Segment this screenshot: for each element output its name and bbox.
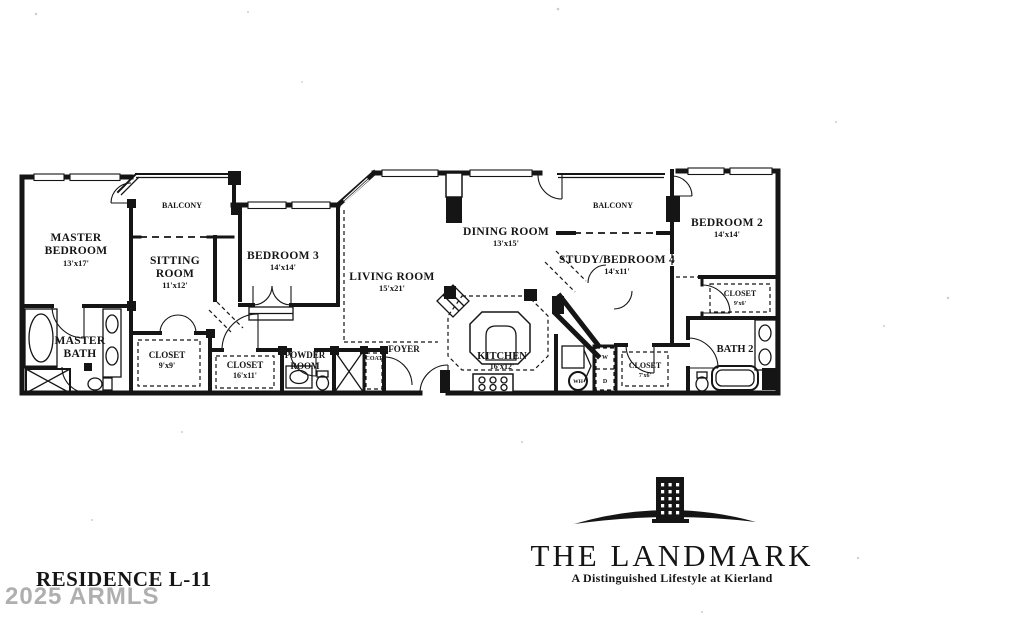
dims-kitchen: 16'x12'	[490, 362, 514, 371]
label-master-bath: MASTER	[54, 335, 105, 347]
dims-closet-bedroom-2: 9'x6'	[734, 301, 747, 307]
brand-tagline: A Distinguished Lifestyle at Kierland	[571, 571, 772, 585]
label-foyer: FOYER	[388, 344, 420, 354]
label-washer: W	[602, 355, 608, 361]
label-bath-2: BATH 2	[717, 344, 754, 355]
label-kitchen: KITCHEN	[477, 351, 527, 362]
label-closet-hall: CLOSET	[227, 360, 264, 370]
dims-closet-hall: 16'x11'	[233, 371, 257, 380]
label-master-bath-2: BATH	[64, 348, 97, 360]
label-study-bedroom-4: STUDY/BEDROOM 4	[559, 254, 675, 266]
label-balcony-right: BALCONY	[593, 201, 633, 210]
dims-closet-laundry: 7'x6'	[639, 373, 652, 379]
coat-and-utility-closet	[334, 350, 364, 393]
label-dryer: D	[603, 379, 608, 385]
label-coat-closet: COAT	[366, 356, 383, 362]
floor-plan-canvas: MASTER BEDROOM 13'x17' BALCONY SITTING R…	[0, 0, 1024, 622]
dims-bedroom-2: 14'x14'	[714, 229, 740, 239]
dims-study-bedroom-4: 14'x11'	[604, 266, 630, 276]
landmark-logo	[574, 477, 756, 524]
armls-watermark: 2025 ARMLS	[5, 583, 160, 610]
label-living-room: LIVING ROOM	[349, 271, 434, 283]
dims-living-room: 15'x21'	[379, 283, 405, 293]
label-powder-room-2: ROOM	[291, 361, 321, 371]
floor-plan-page: MASTER BEDROOM 13'x17' BALCONY SITTING R…	[0, 0, 1024, 622]
label-balcony-left: BALCONY	[162, 201, 202, 210]
dims-dining-room: 13'x15'	[493, 238, 519, 248]
label-water-heater: WH	[573, 379, 584, 385]
dims-bedroom-3: 14'x14'	[270, 262, 296, 272]
label-powder-room: POWDER	[285, 350, 326, 360]
dims-sitting-room: 11'x12'	[162, 280, 188, 290]
label-sitting-room-2: ROOM	[156, 268, 194, 280]
brand-name: THE LANDMARK	[530, 538, 813, 573]
room-labels: MASTER BEDROOM 13'x17' BALCONY SITTING R…	[45, 201, 763, 385]
label-master-bedroom: MASTER	[50, 232, 101, 244]
label-dining-room: DINING ROOM	[463, 226, 549, 238]
balcony-rails	[118, 174, 664, 195]
label-closet-bedroom-2: CLOSET	[724, 289, 757, 298]
label-master-bedroom-2: BEDROOM	[45, 245, 108, 257]
dims-master-bedroom: 13'x17'	[63, 258, 89, 268]
label-sitting-room: SITTING	[150, 255, 200, 267]
dims-closet-master: 9'x9'	[159, 361, 175, 370]
scan-specks	[35, 8, 949, 613]
bedroom3-builtin	[249, 307, 293, 320]
label-bedroom-2: BEDROOM 2	[691, 217, 763, 229]
label-bedroom-3: BEDROOM 3	[247, 250, 319, 262]
label-closet-master: CLOSET	[149, 350, 186, 360]
kitchen-fixtures	[437, 285, 548, 392]
label-closet-laundry: CLOSET	[629, 361, 662, 370]
